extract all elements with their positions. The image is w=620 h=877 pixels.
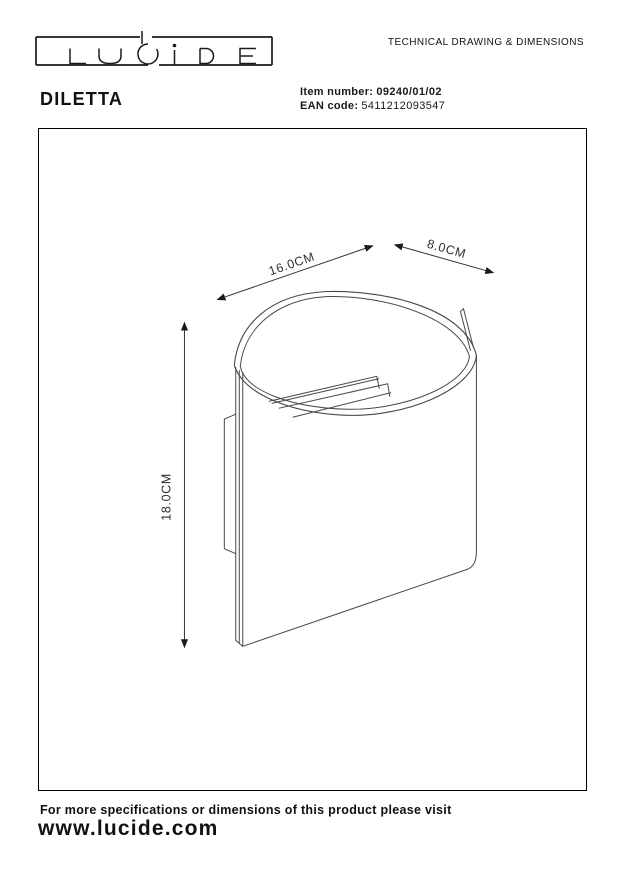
logo-letters xyxy=(70,44,256,65)
seam-edge xyxy=(460,309,473,351)
dimension-depth: 8.0CM xyxy=(395,237,494,273)
inner-plate xyxy=(269,376,391,417)
lucide-logo xyxy=(34,28,278,70)
dim-depth-label: 8.0CM xyxy=(425,237,467,261)
item-number-value: 09240/01/02 xyxy=(376,86,442,98)
lamp-body xyxy=(234,291,476,646)
rim-inner xyxy=(240,296,469,409)
ean-row: EAN code: 5411212093547 xyxy=(300,99,445,113)
website-url: www.lucide.com xyxy=(38,817,219,841)
wall-plate xyxy=(224,414,235,553)
dimension-height: 18.0CM xyxy=(160,323,185,648)
spec-sheet-page: TECHNICAL DRAWING & DIMENSIONS DILETTA I… xyxy=(0,0,620,877)
right-edge xyxy=(466,355,476,569)
item-number-label: Item number: xyxy=(300,86,373,98)
ean-label: EAN code: xyxy=(300,100,358,112)
ean-value: 5411212093547 xyxy=(361,100,445,112)
dim-height-label: 18.0CM xyxy=(160,473,174,521)
doc-title: TECHNICAL DRAWING & DIMENSIONS xyxy=(388,37,584,48)
bottom-edge xyxy=(243,570,467,647)
lamp-technical-drawing: 16.0CM 8.0CM 18.0CM xyxy=(39,129,586,790)
rim-outer xyxy=(234,291,476,415)
item-number-row: Item number: 09240/01/02 xyxy=(300,85,445,99)
product-title: DILETTA xyxy=(40,89,123,110)
left-edge xyxy=(236,367,243,646)
item-info-block: Item number: 09240/01/02 EAN code: 54112… xyxy=(300,85,445,113)
logo-box xyxy=(36,37,272,65)
footer-note: For more specifications or dimensions of… xyxy=(40,803,452,817)
drawing-frame: 16.0CM 8.0CM 18.0CM xyxy=(38,128,587,791)
